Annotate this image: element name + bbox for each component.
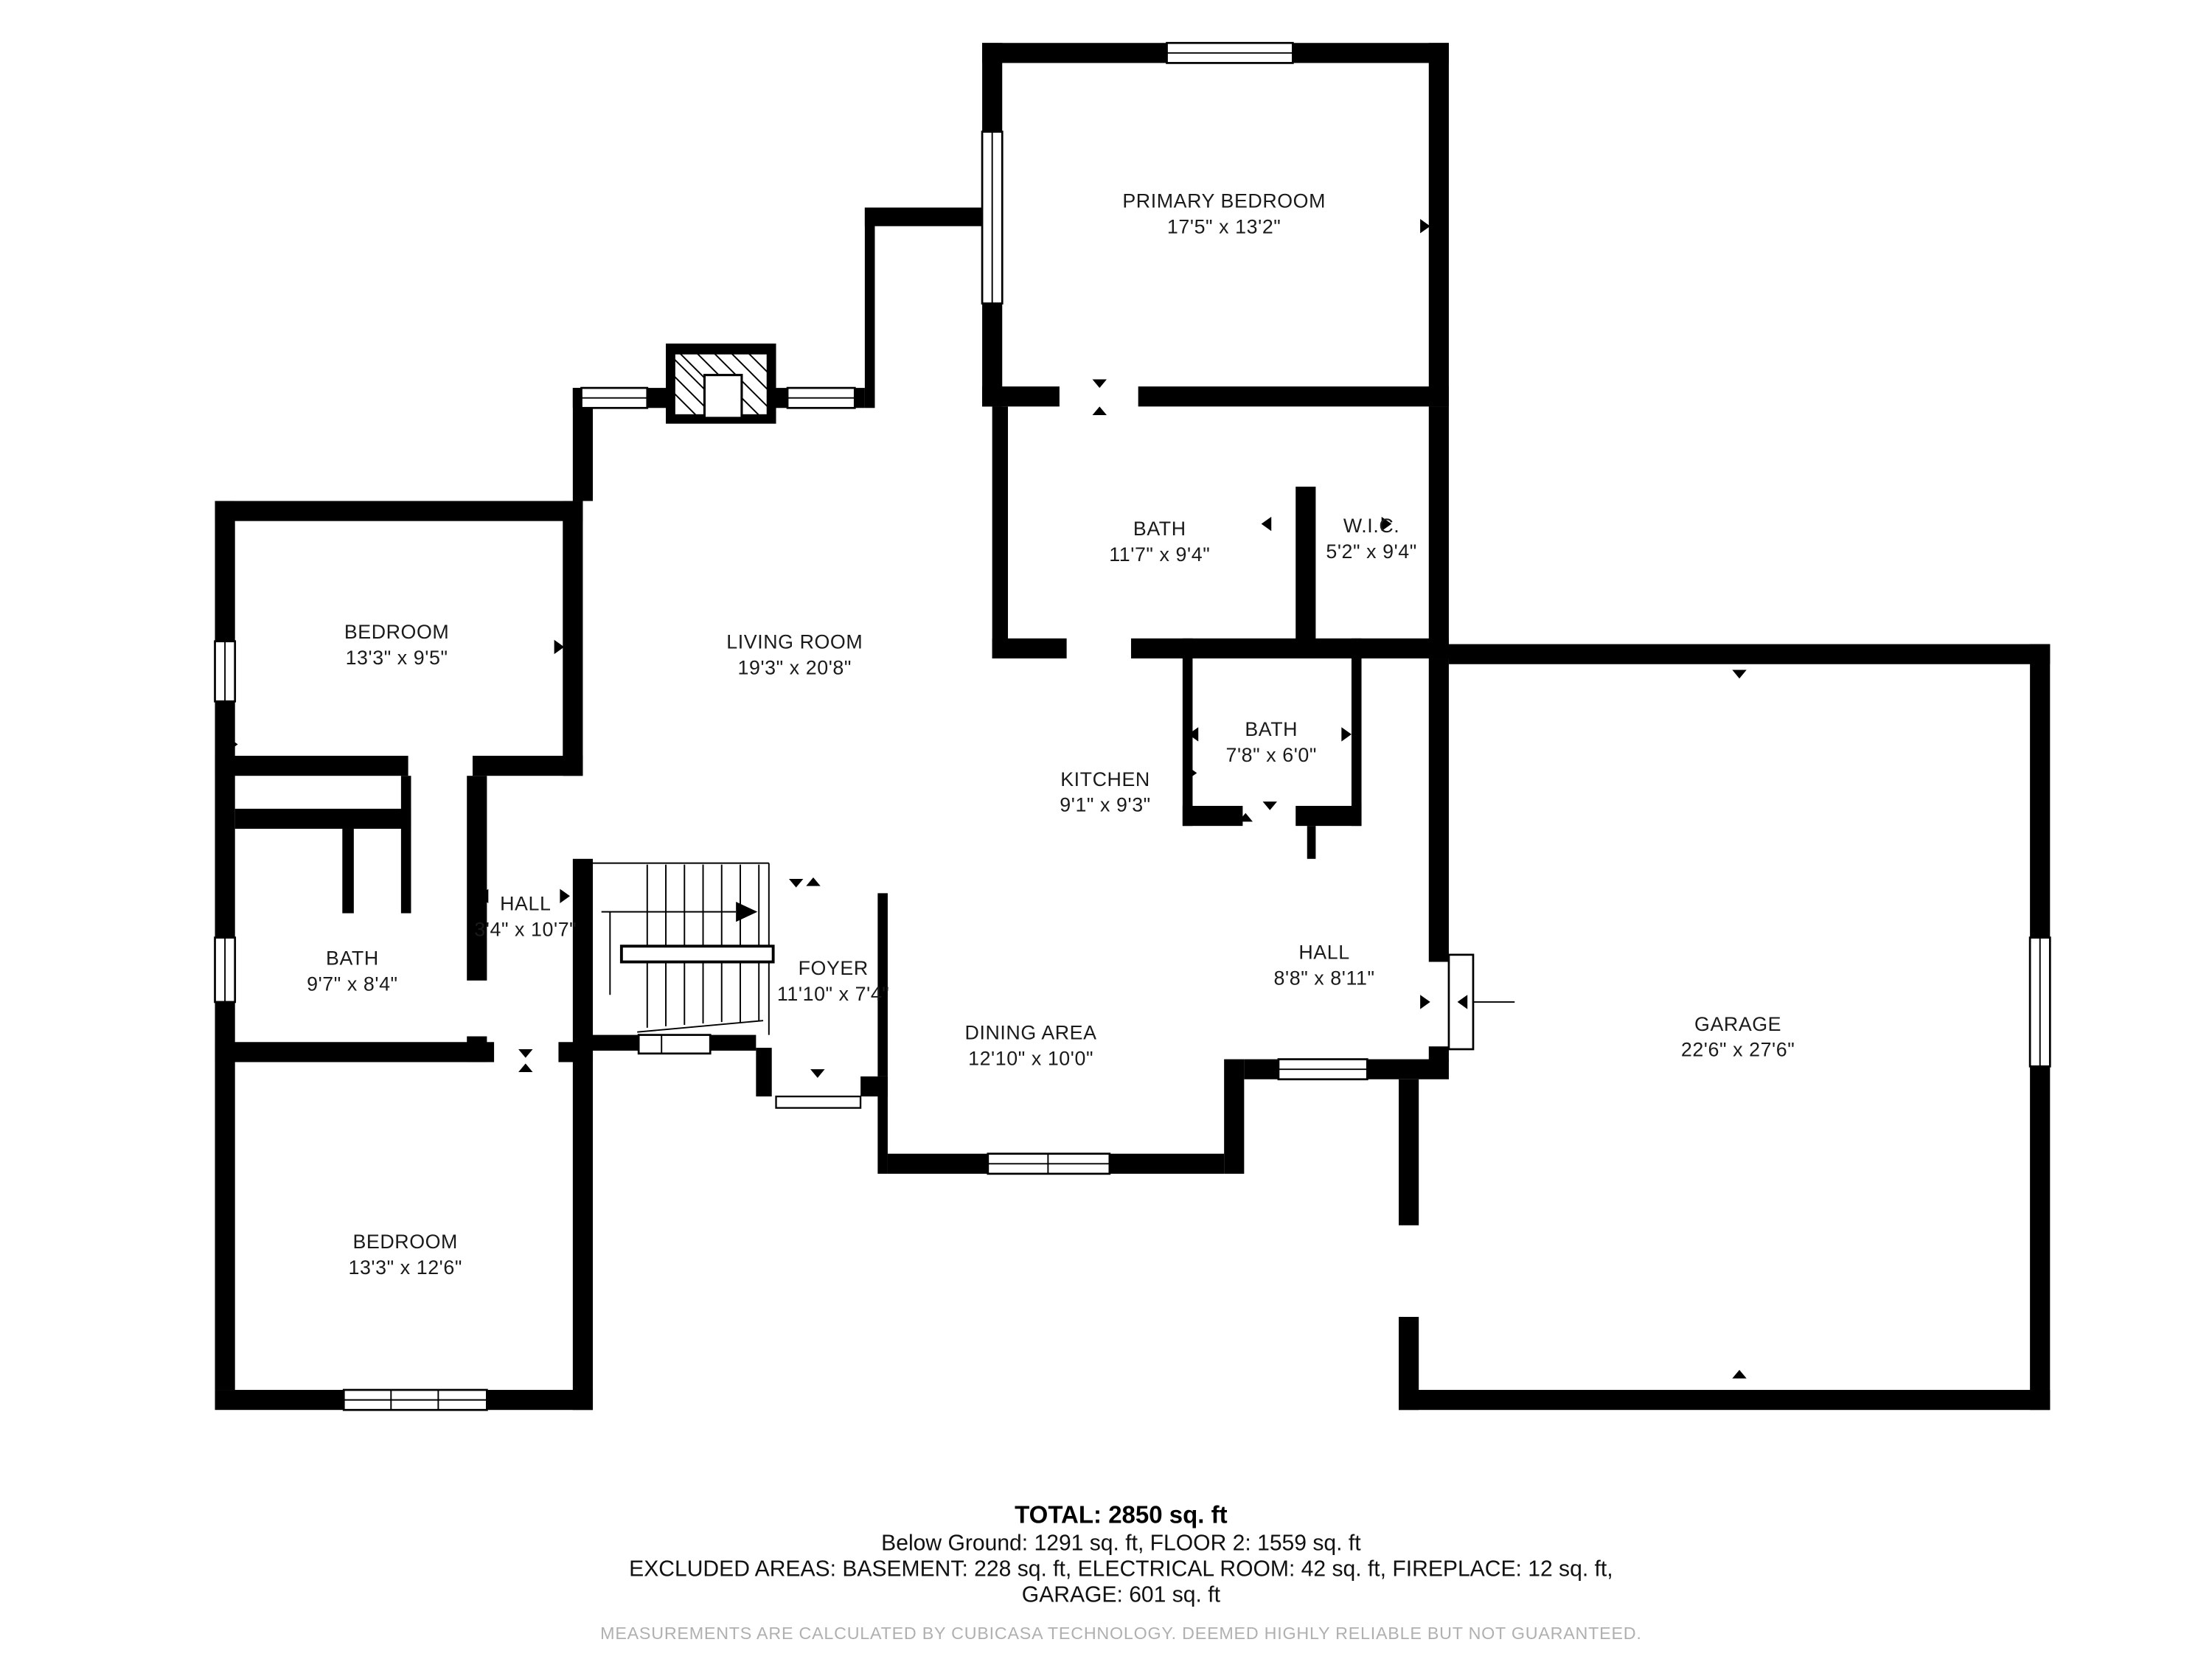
window-icon bbox=[982, 132, 1002, 304]
room-label-bedroom-left: BEDROOM bbox=[344, 621, 449, 643]
window-icon bbox=[215, 641, 235, 702]
window-icon bbox=[1279, 1060, 1367, 1079]
wall-layer bbox=[215, 43, 2051, 1410]
window-icons bbox=[215, 43, 2051, 1410]
door-arrow-icon bbox=[1732, 670, 1746, 679]
room-dims-bedroom-left: 13'3" x 9'5" bbox=[346, 647, 448, 669]
room-label-bath-small: BATH bbox=[1245, 718, 1298, 740]
door-arrow-icon bbox=[1262, 517, 1272, 531]
summary-block: TOTAL: 2850 sq. ft Below Ground: 1291 sq… bbox=[600, 1501, 1641, 1643]
door-arrow-icon bbox=[1093, 379, 1107, 388]
room-dims-wic: 5'2" x 9'4" bbox=[1326, 540, 1417, 563]
floor-plan: PRIMARY BEDROOM 17'5" x 13'2" BATH 11'7"… bbox=[0, 0, 2212, 1659]
summary-excluded-2: GARAGE: 601 sq. ft bbox=[1022, 1582, 1221, 1607]
window-icon bbox=[988, 1154, 1110, 1174]
window-icon bbox=[787, 388, 855, 408]
room-label-foyer: FOYER bbox=[799, 957, 869, 979]
door-arrow-icon bbox=[518, 1049, 532, 1058]
summary-disclaimer: MEASUREMENTS ARE CALCULATED BY CUBICASA … bbox=[600, 1624, 1641, 1643]
room-dims-garage: 22'6" x 27'6" bbox=[1681, 1039, 1795, 1061]
room-label-hall-right: HALL bbox=[1298, 942, 1349, 964]
summary-total: TOTAL: 2850 sq. ft bbox=[1015, 1501, 1228, 1528]
room-label-garage: GARAGE bbox=[1694, 1013, 1781, 1035]
room-label-dining: DINING AREA bbox=[965, 1021, 1097, 1043]
summary-floors: Below Ground: 1291 sq. ft, FLOOR 2: 1559… bbox=[881, 1531, 1361, 1555]
room-dims-living-room: 19'3" x 20'8" bbox=[738, 656, 852, 678]
window-icon bbox=[215, 938, 235, 1002]
door-arrow-icon bbox=[560, 889, 570, 903]
room-label-hall-left: HALL bbox=[500, 893, 551, 915]
room-labels: PRIMARY BEDROOM 17'5" x 13'2" BATH 11'7"… bbox=[307, 189, 1795, 1278]
door-arrow-icon bbox=[1093, 406, 1107, 415]
room-dims-bath-upper: 11'7" x 9'4" bbox=[1109, 543, 1210, 566]
door-arrow-icon bbox=[789, 879, 803, 888]
room-label-bath-upper: BATH bbox=[1133, 518, 1186, 540]
door-arrow-icon bbox=[1420, 219, 1430, 233]
room-dims-hall-right: 8'8" x 8'11" bbox=[1274, 967, 1375, 990]
room-label-bath-left: BATH bbox=[326, 947, 379, 969]
room-dims-kitchen: 9'1" x 9'3" bbox=[1060, 794, 1151, 816]
room-dims-hall-left: 3'4" x 10'7" bbox=[474, 919, 577, 941]
door-arrow-icon bbox=[1341, 727, 1352, 741]
door-arrow-icon bbox=[1263, 801, 1277, 810]
fireplace-icon bbox=[666, 344, 776, 424]
room-dims-bedroom-lower: 13'3" x 12'6" bbox=[348, 1256, 462, 1279]
room-dims-dining: 12'10" x 10'0" bbox=[968, 1047, 1093, 1069]
window-icon bbox=[2030, 938, 2050, 1067]
window-icon bbox=[344, 1390, 487, 1410]
room-dims-bath-left: 9'7" x 8'4" bbox=[307, 973, 398, 995]
window-icon bbox=[1167, 43, 1293, 63]
room-dims-foyer: 11'10" x 7'4" bbox=[777, 983, 889, 1005]
room-label-bedroom-lower: BEDROOM bbox=[352, 1231, 457, 1253]
room-dims-bath-small: 7'8" x 6'0" bbox=[1225, 744, 1317, 766]
door-arrow-icon bbox=[1732, 1370, 1746, 1379]
room-label-living-room: LIVING ROOM bbox=[726, 630, 863, 653]
door-arrow-icon bbox=[518, 1063, 532, 1072]
garage-door bbox=[1429, 955, 1514, 1049]
door-arrow-icon bbox=[1420, 995, 1430, 1009]
room-label-kitchen: KITCHEN bbox=[1060, 768, 1150, 790]
door-arrow-icon bbox=[806, 877, 820, 886]
room-label-primary-bedroom: PRIMARY BEDROOM bbox=[1122, 189, 1326, 212]
room-dims-primary-bedroom: 17'5" x 13'2" bbox=[1167, 215, 1281, 237]
window-icon bbox=[582, 388, 647, 408]
door-arrow-icon bbox=[554, 640, 565, 654]
room-label-wic: W.I.C. bbox=[1343, 515, 1399, 537]
summary-excluded: EXCLUDED AREAS: BASEMENT: 228 sq. ft, EL… bbox=[629, 1557, 1613, 1581]
stairs-icon bbox=[576, 863, 773, 1054]
entry-door bbox=[776, 1077, 861, 1108]
